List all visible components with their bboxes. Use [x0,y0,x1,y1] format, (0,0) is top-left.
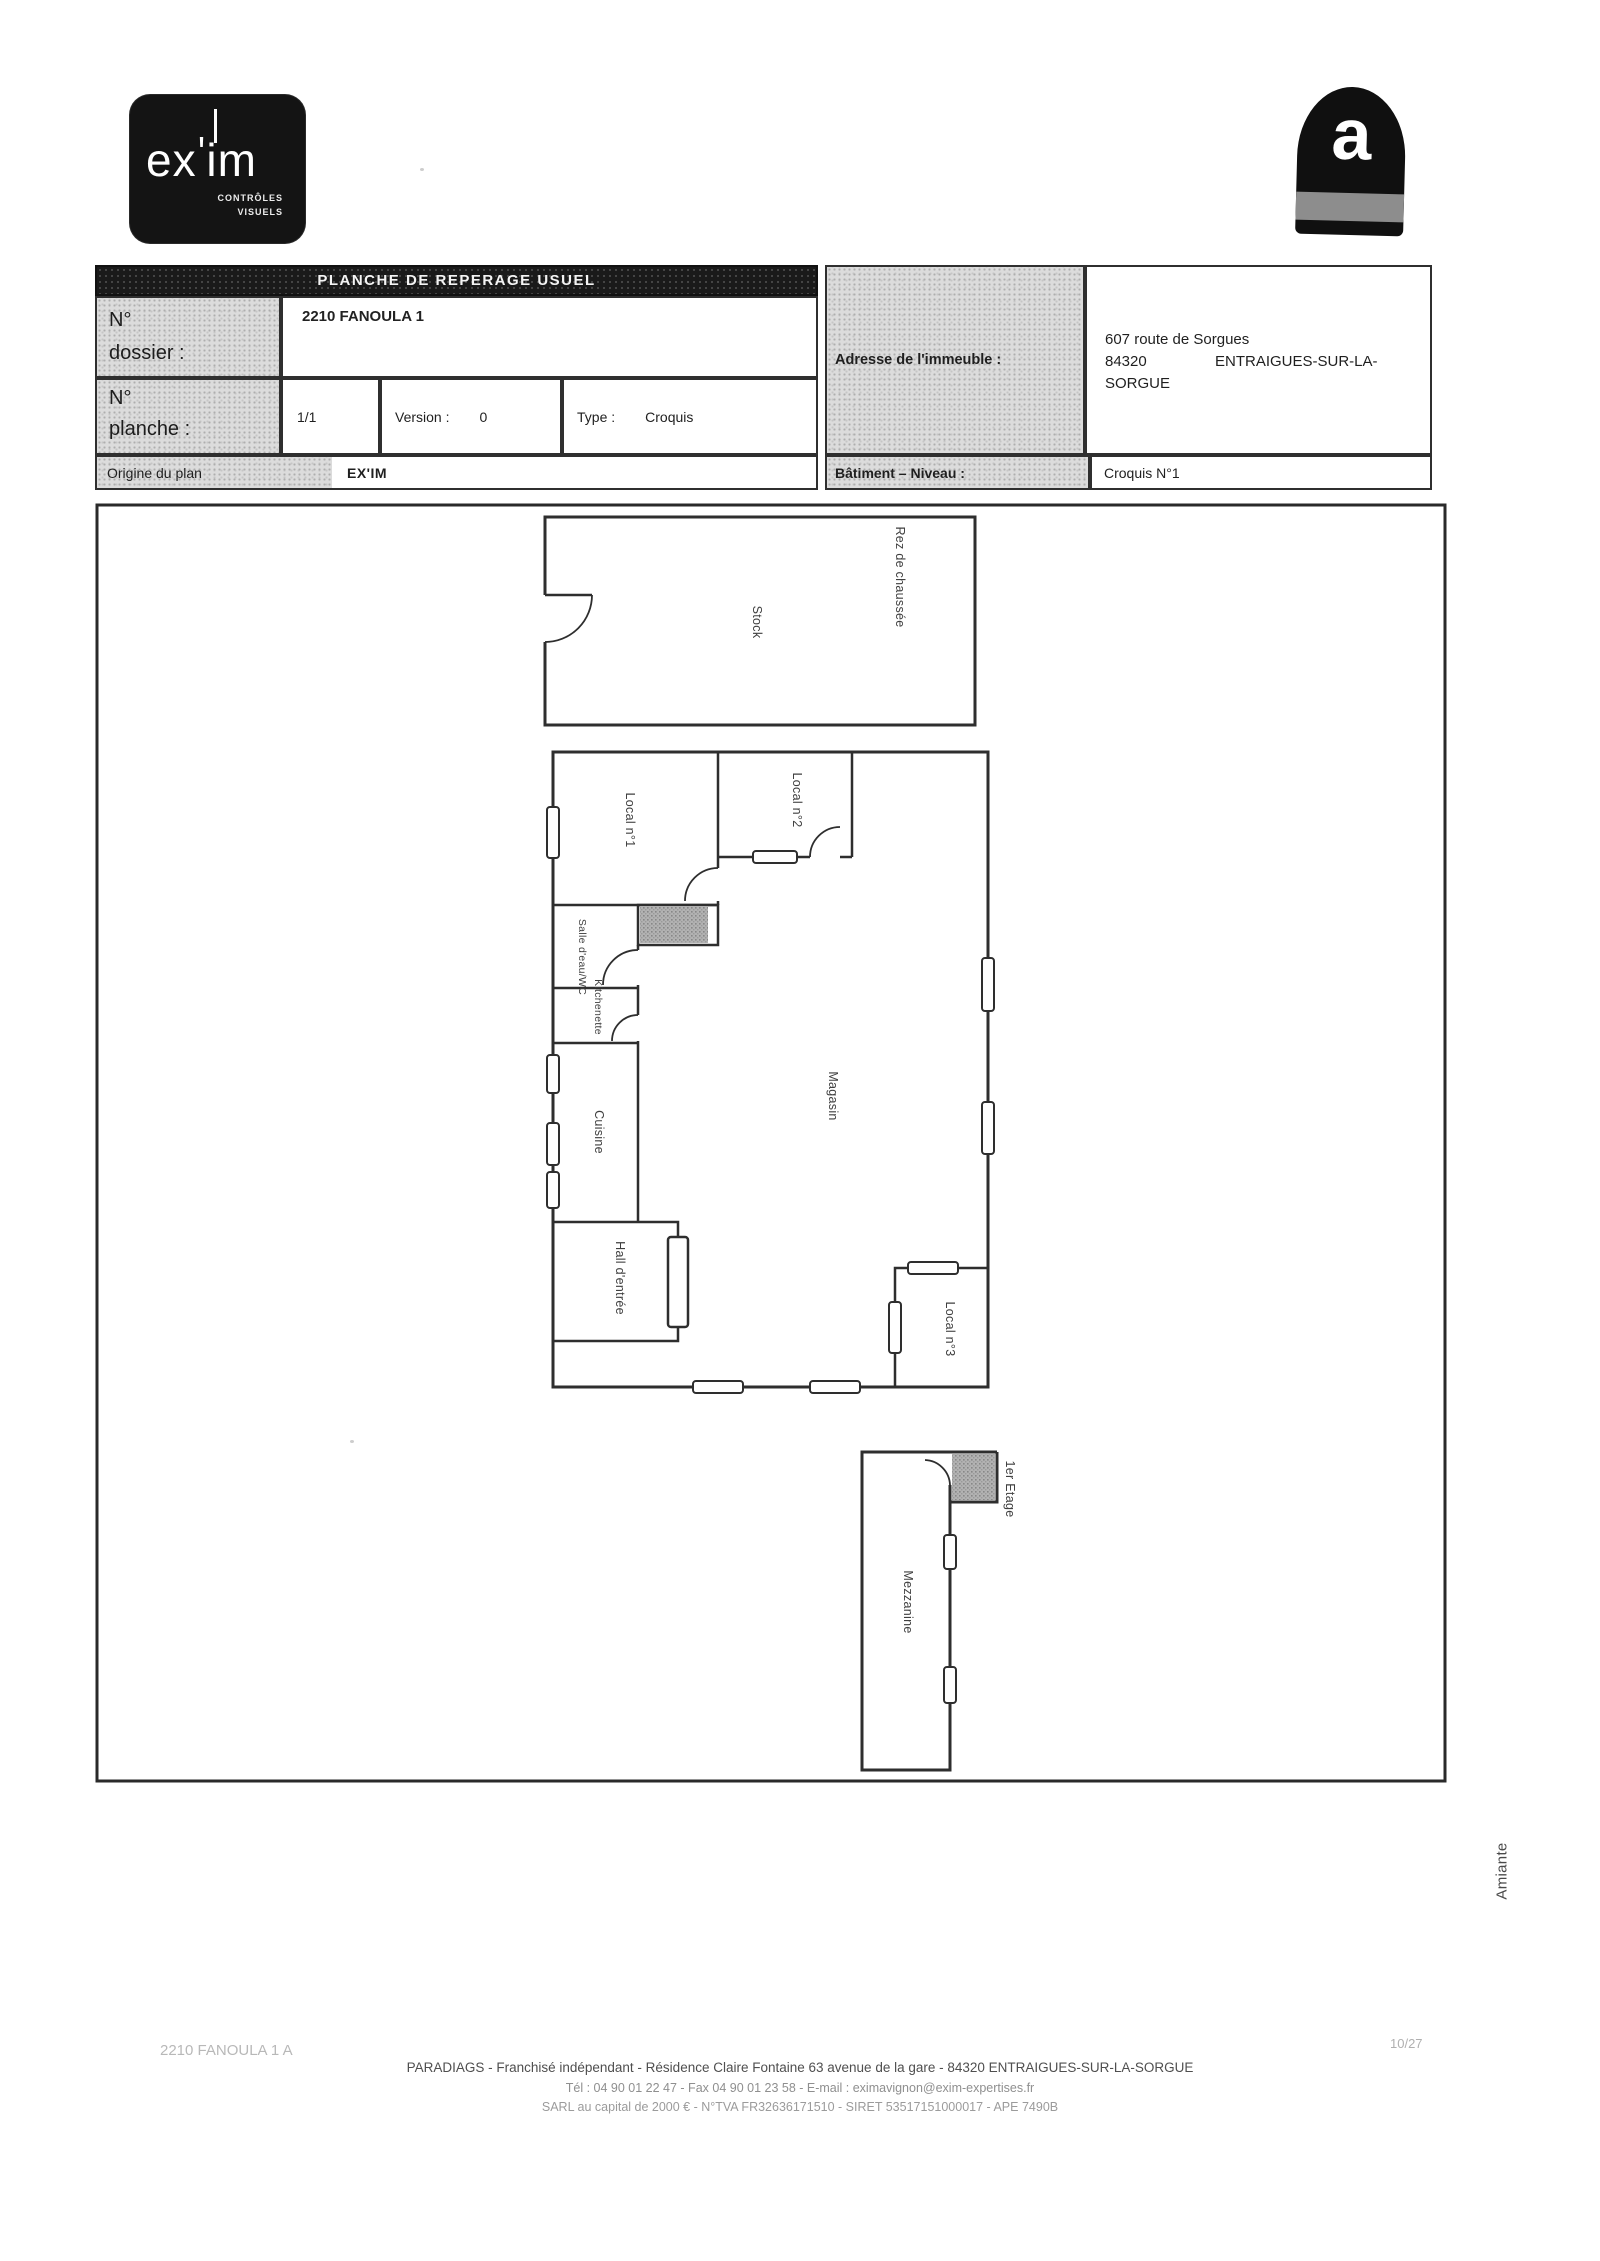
level-label-rez-de-chaussee: Rez de chaussée [893,526,907,627]
logo-tagline: CONTRÔLES VISUELS [217,191,283,219]
floor-plan-drawing [95,503,1447,1783]
logo-apostrophe: ' [198,130,206,176]
window [547,807,559,858]
room-label-local2: Local n°2 [790,773,804,828]
batiment-value-cell: Croquis N°1 [1090,455,1432,490]
adresse-label: Adresse de l'immeuble : [827,267,1083,453]
room-label-stock: Stock [750,606,764,639]
logo-text-im: im [206,134,257,186]
adresse-line2: 84320 ENTRAIGUES-SUR-LA- [1105,351,1430,373]
window [547,1172,559,1208]
window [944,1667,956,1703]
adresse-value: 607 route de Sorgues 84320 ENTRAIGUES-SU… [1087,267,1430,395]
amiante-gray-band [1295,192,1404,223]
origine-value: EX'IM [332,457,387,488]
dossier-label-line1: N° [109,304,279,337]
adresse-value-cell: 607 route de Sorgues 84320 ENTRAIGUES-SU… [1085,265,1432,455]
planche-label-line1: N° [109,383,279,414]
type-label: Type : [577,409,615,425]
room-label-mezzanine: Mezzanine [901,1570,915,1633]
batiment-label-cell: Bâtiment – Niveau : [825,455,1090,490]
planche-value: 1/1 [283,380,378,453]
origine-label-cell: Origine du plan [97,457,332,488]
logo-text-ex: ex [146,134,197,186]
planche-label-line2: planche : [109,414,279,445]
window [547,1123,559,1165]
logo-tagline-line2: VISUELS [217,205,283,219]
window [889,1302,901,1353]
scanned-document-page: ex'im CONTRÔLES VISUELS a PLANCHE DE REP… [0,0,1600,2261]
amiante-letter: a [1297,98,1407,173]
batiment-value: Croquis N°1 [1092,457,1430,488]
amiante-a-icon: a [1295,86,1407,237]
plan-border [97,505,1445,1781]
footer-legal-line: SARL au capital de 2000 € - N°TVA FR3263… [0,2100,1600,2114]
version-cell: Version : 0 [380,378,562,455]
type-value: Croquis [645,409,693,425]
dossier-value-cell: 2210 FANOULA 1 [281,296,818,378]
room-label-magasin: Magasin [826,1071,840,1120]
planche-label: N° planche : [97,380,279,445]
door-arc [685,868,718,901]
mezzanine-level [862,1452,997,1770]
footer-contact-line: Tél : 04 90 01 22 47 - Fax 04 90 01 23 5… [0,2081,1600,2095]
planche-value-cell: 1/1 [281,378,380,455]
footer-file-ref: 2210 FANOULA 1 A [160,2042,293,2059]
batiment-label: Bâtiment – Niveau : [827,457,1088,488]
adresse-city-part1: ENTRAIGUES-SUR-LA- [1215,351,1378,373]
version-value: 0 [479,409,487,425]
adresse-label-cell: Adresse de l'immeuble : [825,265,1085,455]
room-label-kitchenette: Kitchenette [592,979,604,1035]
door-arc [925,1460,950,1485]
origine-label: Origine du plan [97,457,332,488]
window [693,1381,743,1393]
door-arc [603,950,638,985]
level-label-1er-etage: 1er Etage [1003,1461,1017,1518]
room-label-local1: Local n°1 [623,793,637,848]
plate-title-bar: PLANCHE DE REPERAGE USUEL [95,265,818,296]
window [982,1102,994,1154]
door-arc [612,1015,638,1041]
window [908,1262,958,1274]
side-label-amiante: Amiante [1494,1842,1511,1899]
footer-page-number: 10/27 [1390,2036,1423,2051]
scan-speck [420,168,424,171]
room-label-salle-eau: Salle d'eau/WC [576,919,588,995]
room-label-cuisine: Cuisine [592,1110,606,1154]
window [753,851,797,863]
type-field: Type : Croquis [564,380,816,453]
planche-label-cell: N° planche : [95,378,281,455]
exim-logo: ex'im CONTRÔLES VISUELS [130,95,305,243]
window [944,1535,956,1569]
adresse-city-part2: SORGUE [1105,373,1430,395]
dossier-label-cell: N° dossier : [95,296,281,378]
stairs-hatch-fill [640,907,708,943]
door-arc [545,595,592,642]
origine-row: Origine du plan EX'IM [95,455,818,490]
dossier-label: N° dossier : [97,298,279,370]
dossier-label-line2: dossier : [109,337,279,370]
room-label-hall: Hall d'entrée [613,1241,627,1315]
stairs-hatch-fill [952,1454,995,1500]
adresse-line1: 607 route de Sorgues [1105,329,1430,351]
window [547,1055,559,1093]
type-cell: Type : Croquis [562,378,818,455]
version-field: Version : 0 [382,380,560,453]
adresse-postal-code: 84320 [1105,351,1215,373]
window [982,958,994,1011]
window [810,1381,860,1393]
room-label-local3: Local n°3 [943,1302,957,1357]
entrance-door [668,1237,688,1327]
logo-tagline-line1: CONTRÔLES [217,191,283,205]
door-arc [810,827,840,857]
footer-company-line: PARADIAGS - Franchisé indépendant - Rési… [0,2060,1600,2075]
version-label: Version : [395,409,449,425]
scan-speck [350,1440,354,1443]
logo-wordmark: ex'im [146,137,257,183]
